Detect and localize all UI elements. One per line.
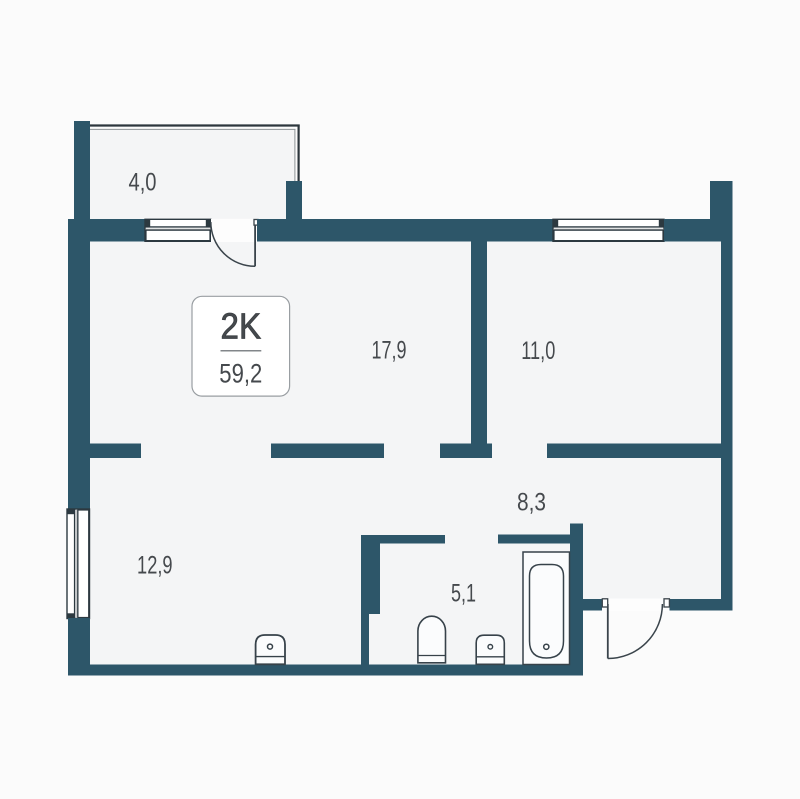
- svg-text:12,9: 12,9: [137, 551, 173, 579]
- svg-text:11,0: 11,0: [521, 337, 555, 365]
- svg-text:59,2: 59,2: [219, 359, 262, 389]
- svg-text:8,3: 8,3: [517, 488, 546, 516]
- svg-text:5,1: 5,1: [451, 580, 476, 608]
- svg-text:17,9: 17,9: [372, 336, 407, 364]
- svg-text:2K: 2K: [221, 305, 262, 346]
- svg-text:4,0: 4,0: [129, 169, 157, 197]
